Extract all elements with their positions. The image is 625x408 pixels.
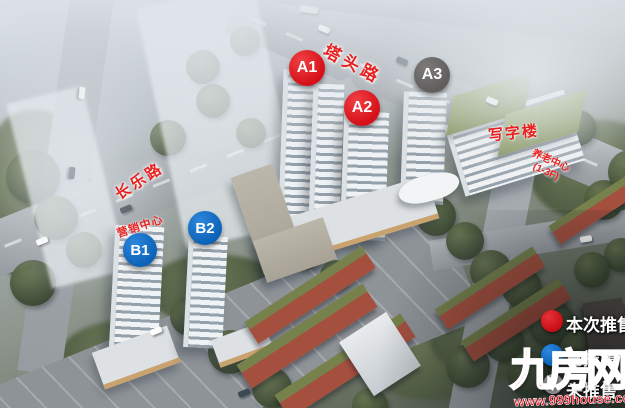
car — [78, 87, 85, 100]
legend-label-current: 本次推售 — [566, 311, 625, 336]
car — [68, 167, 75, 180]
marker-a3: A3 — [414, 57, 450, 93]
marker-b2: B2 — [188, 211, 222, 245]
marker-a1: A1 — [289, 50, 325, 86]
marker-a2: A2 — [344, 90, 380, 126]
aerial-rendering: 塔头路 长乐路 写字楼 营销中心 养老中心 (1-3F) A1 A2 A3 B1… — [0, 0, 625, 408]
tower-b2 — [183, 235, 228, 349]
watermark-logo: 九房网 — [510, 350, 624, 393]
tree — [574, 252, 610, 288]
truck — [300, 5, 319, 14]
marker-b1: B1 — [123, 233, 157, 267]
legend-dot-current — [541, 310, 563, 332]
